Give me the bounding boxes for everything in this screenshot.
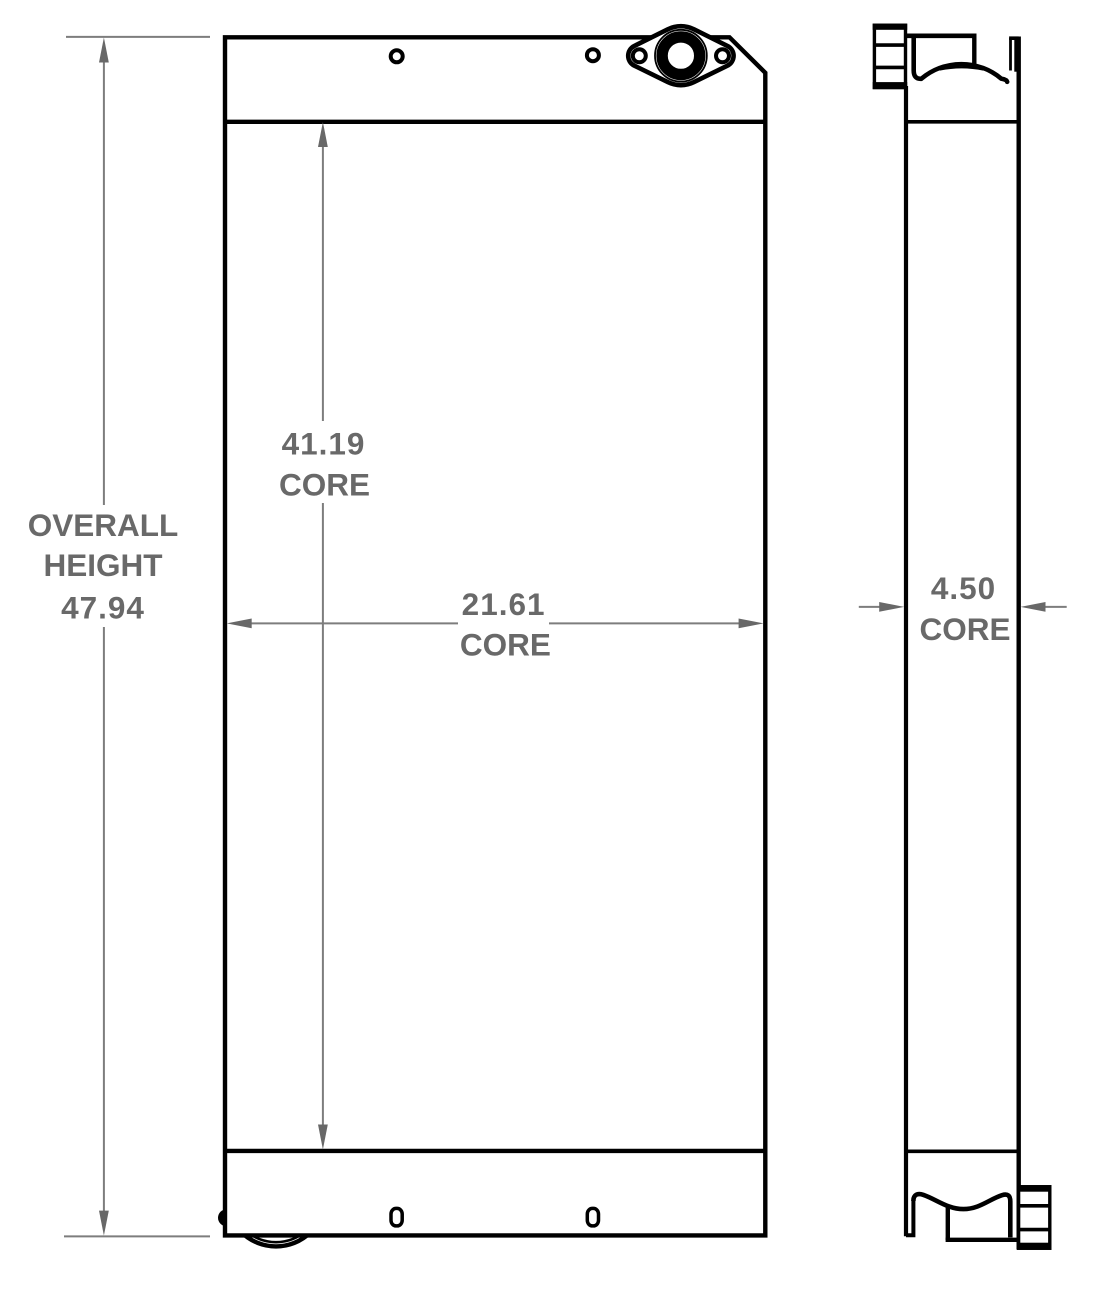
svg-text:CORE: CORE	[279, 467, 370, 503]
svg-text:OVERALL: OVERALL	[28, 507, 179, 543]
svg-text:4.50: 4.50	[931, 570, 996, 606]
svg-text:41.19: 41.19	[282, 426, 366, 462]
svg-text:HEIGHT: HEIGHT	[43, 547, 162, 583]
svg-text:CORE: CORE	[460, 626, 551, 662]
svg-text:47.94: 47.94	[61, 590, 145, 626]
svg-text:CORE: CORE	[919, 611, 1010, 647]
svg-text:21.61: 21.61	[462, 586, 546, 622]
